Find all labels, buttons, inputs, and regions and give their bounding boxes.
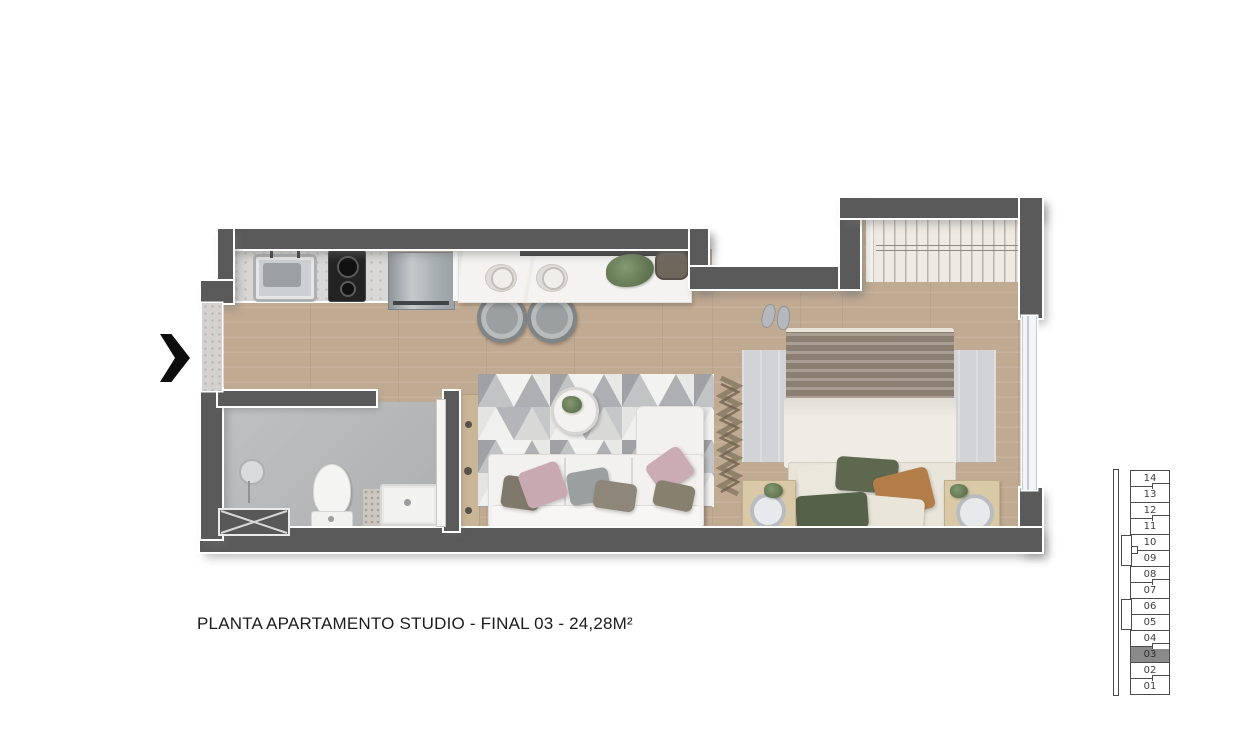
wall-bottom — [200, 528, 1042, 552]
bed-blanket — [786, 328, 954, 408]
wall-right-upper — [1020, 198, 1042, 318]
floor-cell: 05 — [1130, 614, 1170, 631]
shelf-strip — [458, 394, 480, 534]
burner-icon — [340, 281, 356, 297]
stack-protrusion — [1121, 599, 1132, 630]
floor-drain — [218, 508, 290, 536]
nightstand-tray — [956, 494, 994, 532]
kitchen-sink-basin — [263, 263, 301, 287]
decor-dot — [464, 467, 472, 475]
toilet-bowl — [313, 464, 351, 516]
stack-notch — [1152, 579, 1169, 585]
building-section-diagram: 14 13 12 11 10 09 08 07 06 05 04 03 02 0… — [1100, 455, 1190, 715]
elevator-shaft — [1113, 469, 1119, 696]
wall-top — [218, 229, 708, 249]
floor-plan-caption: PLANTA APARTAMENTO STUDIO - FINAL 03 - 2… — [197, 614, 633, 634]
tray-icon — [655, 251, 689, 280]
stack-notch — [1152, 675, 1169, 681]
wall-left-protrusion — [201, 281, 233, 303]
floor-plan-page: PLANTA APARTAMENTO STUDIO - FINAL 03 - 2… — [0, 0, 1240, 751]
decor-dot — [465, 421, 472, 428]
plant-icon — [950, 484, 968, 498]
entry-arrow-icon — [160, 334, 190, 382]
plant-icon — [764, 483, 783, 498]
bathroom-wall-top — [218, 391, 376, 406]
refrigerator-handle — [393, 301, 449, 305]
entry-threshold — [202, 303, 222, 391]
shower-head-icon — [239, 459, 265, 485]
stack-notch — [1152, 515, 1169, 521]
floor-cell: 06 — [1130, 598, 1170, 615]
plate-icon — [542, 267, 565, 290]
bathroom-partition — [444, 391, 459, 531]
wall-notch-bottom — [690, 267, 855, 289]
stack-notch — [1152, 643, 1169, 649]
window — [1022, 316, 1037, 490]
nightstand-tray — [750, 493, 786, 529]
window-glass-line — [1027, 316, 1029, 490]
closet-side-panel — [866, 216, 874, 282]
wall-left-upper — [218, 229, 233, 284]
decor-dot — [465, 507, 472, 514]
stack-protrusion-tab — [1131, 546, 1138, 554]
closet-rod — [876, 245, 1018, 251]
flush-button — [328, 516, 334, 522]
shower-stem — [248, 481, 250, 503]
bed-pillow — [859, 494, 926, 531]
plant-icon — [562, 396, 582, 413]
sofa-pillow — [592, 479, 637, 513]
burner-icon — [337, 256, 359, 278]
plate-icon — [491, 267, 514, 290]
vanity-faucet — [404, 499, 411, 506]
bed-pillow — [795, 492, 869, 533]
stack-notch — [1152, 483, 1169, 489]
decor-zigzag-ladder — [714, 376, 744, 502]
bathroom-sliding-door — [436, 399, 446, 527]
wall-top-right — [840, 198, 1042, 218]
